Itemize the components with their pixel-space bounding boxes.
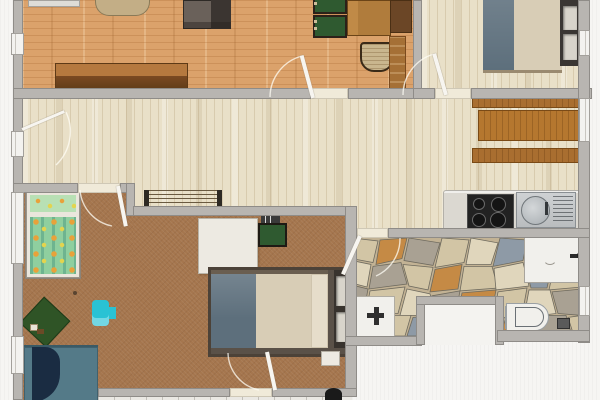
desk [198, 218, 258, 274]
bed-mattress [514, 0, 562, 70]
toy-block [37, 329, 44, 334]
window [579, 30, 590, 56]
chair-armrest [314, 27, 317, 30]
bed-blanket [211, 274, 256, 348]
kitchen-sink [516, 192, 576, 228]
chair-armrest [314, 2, 317, 5]
small-object [73, 291, 77, 295]
window [11, 33, 24, 55]
wall-family-bedroom-south [272, 388, 357, 397]
wall-bathroom-north [388, 228, 590, 238]
kitchen-cabinet [478, 110, 584, 141]
wall-top [28, 0, 80, 7]
sink-faucet [545, 202, 548, 215]
shelf-compartment [563, 6, 577, 30]
burner [473, 198, 485, 210]
bed [208, 267, 351, 357]
chair-armrest [314, 20, 317, 23]
wall-shelf [560, 0, 580, 66]
dining-chair [313, 15, 347, 38]
window [11, 131, 24, 157]
side-table [95, 0, 150, 16]
wall-bathroom-south [345, 336, 422, 346]
window [579, 98, 590, 142]
radiator-end [217, 190, 222, 207]
toy [92, 300, 109, 326]
doorway-bedroom [435, 88, 471, 99]
kids-bed-bedding [30, 217, 76, 274]
dining-table [347, 0, 391, 36]
doorway-living [311, 88, 348, 99]
wall-bedroom-west [413, 0, 422, 99]
burner [472, 213, 486, 227]
kids-bed-pillow [30, 195, 76, 212]
wall-living-south [348, 88, 415, 99]
kids-bed [26, 190, 80, 278]
doorway-terrace [230, 388, 272, 397]
building-recess [425, 305, 495, 345]
basin-faucet [367, 313, 384, 318]
burner [490, 212, 506, 228]
wall-bedroom-south [413, 88, 435, 99]
wall-bathroom-south [497, 330, 590, 342]
sofa-seat-edge [183, 22, 231, 29]
double-bed [483, 0, 562, 73]
sink-drainboard [553, 196, 573, 224]
bed-pillow [311, 274, 328, 348]
day-bed-blanket [32, 347, 60, 400]
window [11, 336, 24, 374]
bed-mattress [256, 274, 318, 348]
toilet-brush [557, 318, 570, 329]
floor-plan [0, 0, 600, 400]
wall-family-bedroom-north [133, 206, 357, 216]
plant-pot [325, 388, 342, 400]
toilet [506, 303, 549, 331]
wall-family-bedroom-south [98, 388, 230, 397]
burner [491, 197, 506, 212]
nightstand [321, 351, 340, 366]
desk-chair [258, 223, 287, 247]
wall-recess [416, 296, 504, 305]
toilet-seat [515, 307, 544, 327]
wall-bedroom-south [471, 88, 592, 99]
cooktop [467, 194, 514, 229]
bed-blanket [483, 0, 514, 70]
dining-chair [313, 0, 347, 14]
shower [524, 236, 582, 283]
tall-cabinet [390, 0, 412, 33]
tall-cabinet [389, 36, 406, 89]
toy-part [109, 307, 116, 319]
day-bed [24, 345, 98, 400]
wall-family-bedroom-east [345, 206, 357, 397]
wall-living-south [13, 88, 311, 99]
kitchen-cabinet [472, 148, 584, 163]
sofa [183, 0, 231, 29]
shelf-compartment [563, 34, 577, 60]
shower-mark [543, 251, 557, 265]
window [11, 192, 24, 264]
doorway-family-bedroom [78, 183, 120, 193]
window [579, 286, 590, 316]
radiator-end [144, 190, 149, 207]
radiator [144, 190, 222, 207]
